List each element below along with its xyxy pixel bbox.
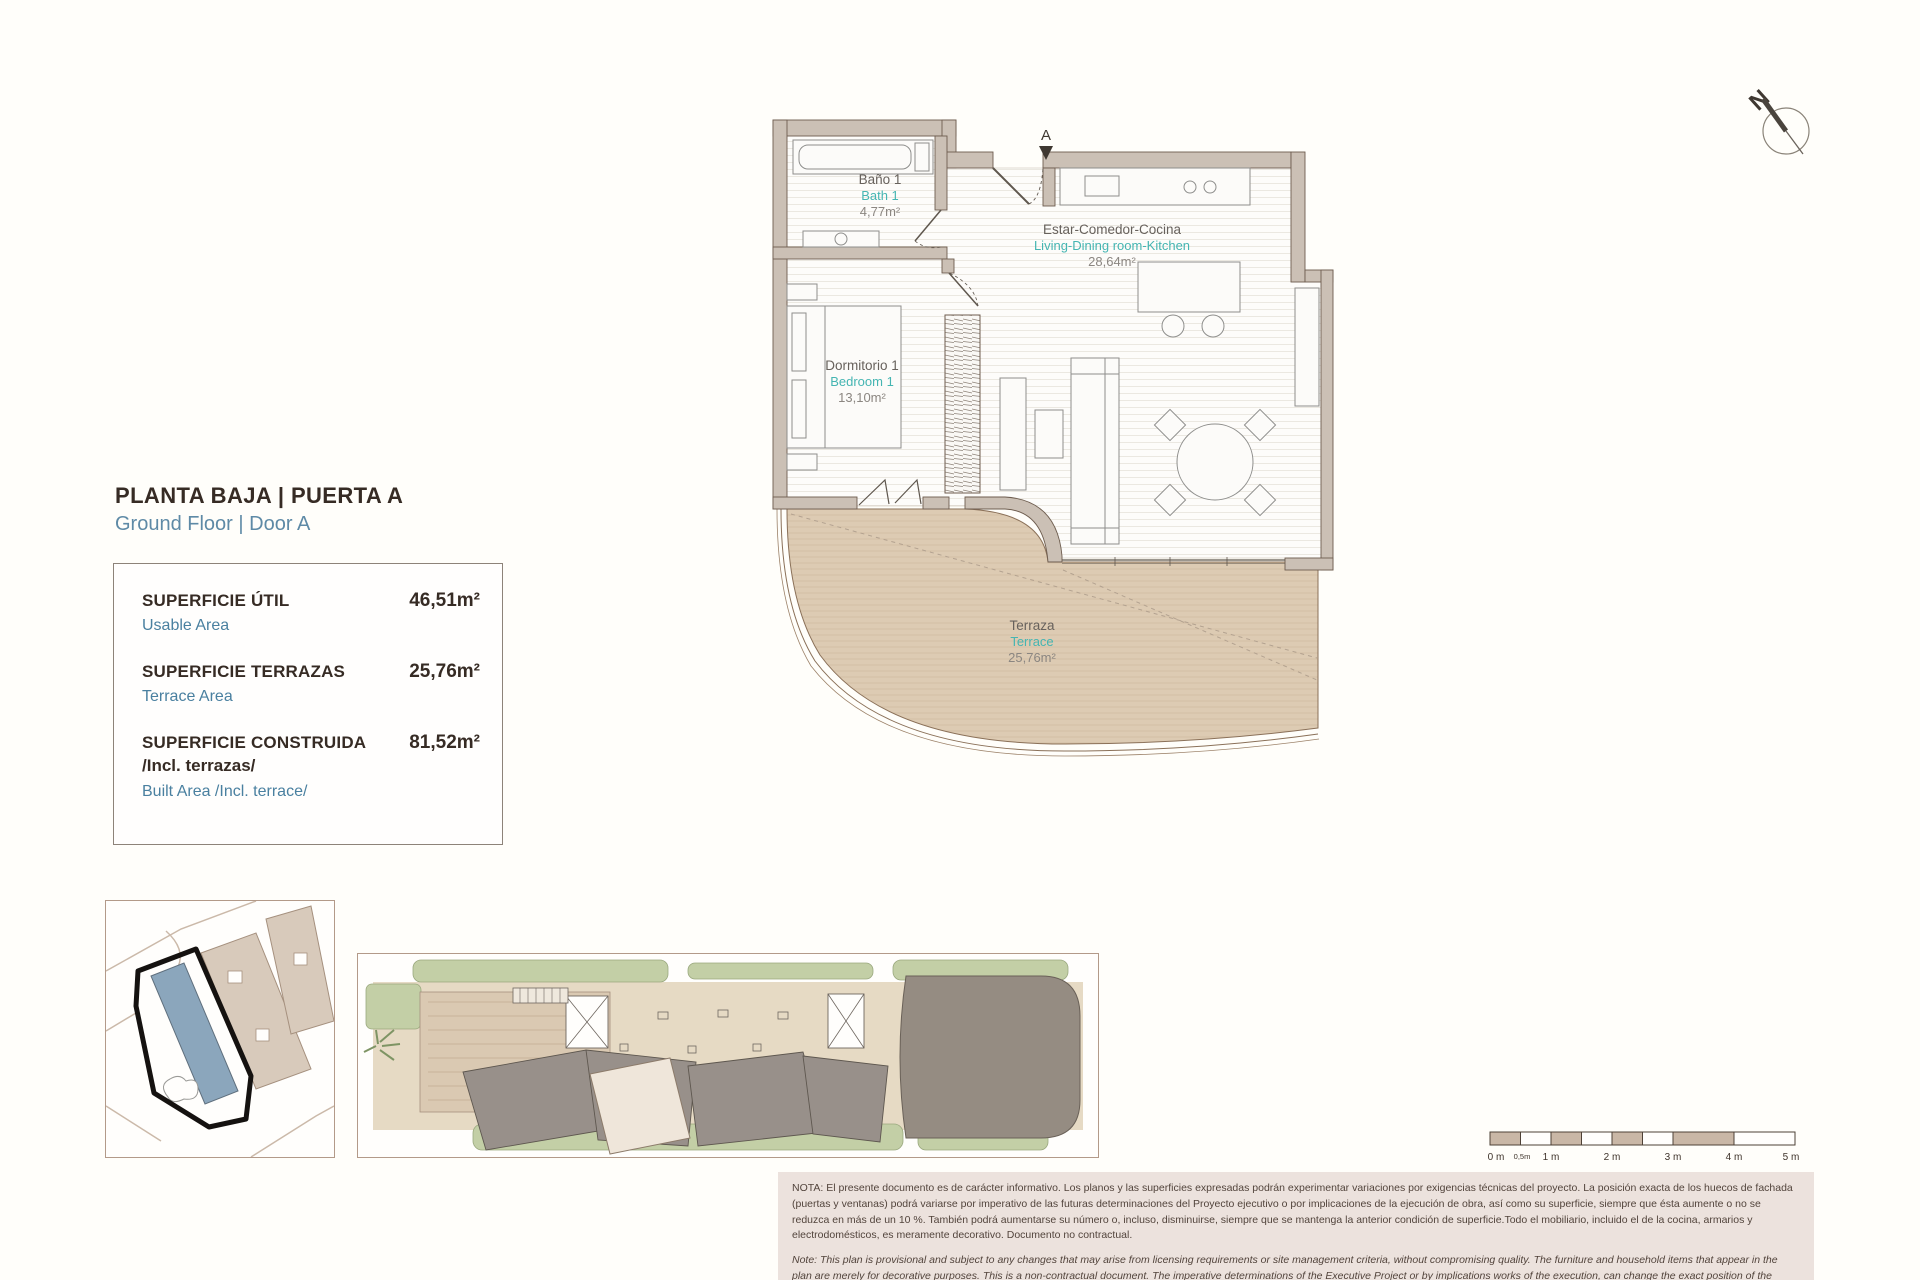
- area-label-es: SUPERFICIE CONSTRUIDA: [142, 732, 366, 754]
- north-indicator-graphic: N: [1740, 72, 1835, 177]
- kitchen-cabinets: [1295, 288, 1319, 406]
- tv-bench: [1000, 378, 1026, 490]
- scale-label: 0,5m: [1514, 1152, 1531, 1161]
- compass-needle-thin: [1786, 131, 1803, 154]
- stool: [1202, 315, 1224, 337]
- wardrobe: [945, 315, 980, 493]
- scale-segments: [1490, 1132, 1795, 1145]
- site-plan-thumbnail: [105, 900, 335, 1158]
- north-indicator: N: [1740, 72, 1835, 177]
- compass-needle-thick: [1763, 99, 1786, 131]
- coffee-table: [1035, 410, 1063, 458]
- scale-label: 2 m: [1604, 1152, 1621, 1163]
- sofa: [1071, 358, 1119, 544]
- area-row-built: SUPERFICIE CONSTRUIDA 81,52m² /Incl. ter…: [142, 732, 480, 803]
- nightstand: [787, 454, 817, 470]
- site-plan-overview: [357, 953, 1099, 1158]
- nightstand: [787, 284, 817, 300]
- floor-plan-drawing: A: [765, 110, 1335, 760]
- scale-label: 5 m: [1783, 1152, 1800, 1163]
- pool-shape: [163, 1076, 198, 1101]
- site-thumbnail-graphic: [106, 901, 334, 1157]
- area-row-terrace: SUPERFICIE TERRAZAS 25,76m² Terrace Area: [142, 661, 480, 708]
- dining-table: [1177, 424, 1253, 500]
- area-label-es: SUPERFICIE ÚTIL: [142, 590, 290, 612]
- stool: [1162, 315, 1184, 337]
- area-label-en: Built Area /Incl. terrace/: [142, 782, 480, 803]
- entrance-letter: A: [1041, 127, 1051, 144]
- highlighted-block-region: [900, 976, 1080, 1138]
- area-label-en: Terrace Area: [142, 687, 480, 708]
- scale-label: 4 m: [1726, 1152, 1743, 1163]
- site-overview-graphic: [358, 954, 1098, 1157]
- area-label-en: Usable Area: [142, 616, 480, 637]
- area-value: 46,51m²: [399, 590, 480, 612]
- area-row-usable: SUPERFICIE ÚTIL 46,51m² Usable Area: [142, 590, 480, 637]
- area-value: 81,52m²: [399, 732, 480, 754]
- kitchen-counter: [1060, 168, 1250, 205]
- scale-label: 0 m: [1488, 1152, 1504, 1163]
- page-subtitle: Ground Floor | Door A: [115, 513, 403, 536]
- bed: [787, 306, 901, 448]
- area-label-es2: /Incl. terrazas/: [142, 754, 480, 778]
- apartment-floor-plan: A: [765, 110, 1335, 760]
- kitchen-island: [1138, 262, 1240, 312]
- scale-label: 3 m: [1665, 1152, 1682, 1163]
- area-label-es: SUPERFICIE TERRAZAS: [142, 661, 345, 683]
- page-title: PLANTA BAJA | PUERTA A: [115, 483, 403, 509]
- disclaimer-note: NOTA: El presente documento es de caráct…: [778, 1172, 1814, 1280]
- title-block: PLANTA BAJA | PUERTA A Ground Floor | Do…: [115, 483, 403, 536]
- area-value: 25,76m²: [399, 661, 480, 683]
- scale-labels: 0 m 0,5m 1 m 2 m 3 m 4 m 5 m: [1488, 1152, 1799, 1163]
- scale-bar: 0 m 0,5m 1 m 2 m 3 m 4 m 5 m: [1488, 1126, 1818, 1168]
- disclaimer-note-en: Note: This plan is provisional and subje…: [792, 1253, 1800, 1280]
- floor-plan-sheet: N: [0, 0, 1920, 1280]
- scale-bar-graphic: 0 m 0,5m 1 m 2 m 3 m 4 m 5 m: [1488, 1126, 1818, 1168]
- disclaimer-note-es: NOTA: El presente documento es de caráct…: [792, 1181, 1800, 1244]
- scale-label: 1 m: [1543, 1152, 1560, 1163]
- area-summary-box: SUPERFICIE ÚTIL 46,51m² Usable Area SUPE…: [113, 563, 503, 845]
